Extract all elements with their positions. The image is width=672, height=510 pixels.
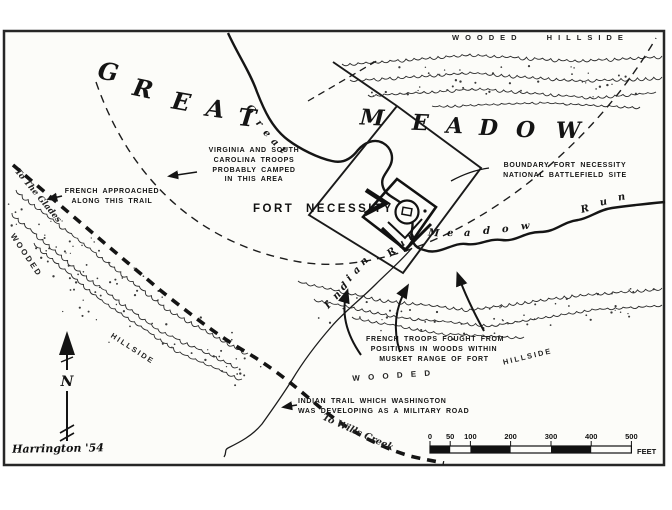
annotation-line: IN THIS AREA [193, 175, 315, 185]
speckle-dot [47, 261, 49, 263]
speckle-dot [417, 90, 418, 91]
speckle-dot [398, 66, 400, 68]
scale-unit: FEET [637, 447, 657, 456]
speckle-dot [436, 311, 438, 313]
speckle-dot [407, 93, 409, 95]
speckle-dot [500, 66, 502, 68]
speckle-dot [434, 321, 436, 323]
speckle-dot [129, 326, 131, 328]
speckle-dot [488, 91, 490, 93]
scale-tick: 200 [504, 432, 517, 441]
speckle-dot [485, 93, 487, 95]
speckle-dot [526, 323, 528, 325]
meadow-name-letter: O [516, 119, 536, 141]
speckle-dot [516, 321, 517, 322]
scale-tick: 500 [625, 432, 638, 441]
speckle-dot [509, 82, 511, 84]
speckle-dot [143, 275, 145, 277]
speckle-dot [585, 82, 586, 83]
speckle-dot [96, 319, 97, 320]
speckle-dot [75, 281, 77, 283]
speckle-dot [207, 349, 208, 350]
speckle-dot [635, 93, 637, 95]
speckle-dot [77, 274, 79, 276]
speckle-dot [494, 332, 496, 334]
speckle-dot [500, 306, 502, 308]
speckle-dot [385, 91, 387, 93]
meadow-name-letter: E [412, 112, 430, 135]
speckle-dot [151, 323, 153, 325]
speckle-dot [595, 88, 597, 90]
speckle-dot [425, 67, 426, 68]
speckle-dot [83, 300, 84, 301]
speckle-dot [91, 237, 92, 238]
speckle-dot [528, 65, 530, 67]
speckle-dot [88, 311, 90, 313]
speckle-dot [55, 246, 57, 248]
speckle-dot [599, 86, 601, 88]
speckle-dot [610, 311, 612, 313]
speckle-dot [446, 89, 448, 91]
speckle-dot [231, 332, 233, 334]
speckle-dot [236, 358, 237, 359]
speckle-dot [62, 311, 63, 312]
speckle-dot [35, 247, 37, 249]
speckle-dot [439, 74, 440, 75]
speckle-dot [136, 290, 138, 292]
speckle-dot [97, 278, 99, 280]
speckle-dot [573, 67, 575, 69]
speckle-dot [100, 295, 102, 297]
speckle-dot [493, 318, 495, 320]
speckle-dot [70, 253, 71, 254]
speckle-dot [81, 315, 83, 317]
speckle-dot [8, 203, 10, 205]
boundary-annotation: BOUNDARY FORT NECESSITY NATIONAL BATTLEF… [489, 161, 641, 181]
speckle-dot [597, 293, 599, 295]
meadow-name-letter: D [479, 117, 498, 139]
speckle-dot [585, 314, 587, 316]
speckle-dot [420, 329, 422, 331]
speckle-dot [162, 343, 164, 345]
speckle-dot [424, 321, 426, 323]
speckle-dot [64, 250, 66, 252]
speckle-dot [566, 298, 568, 300]
speckle-dot [83, 271, 85, 273]
speckle-dot [627, 313, 628, 314]
speckle-dot [116, 283, 118, 285]
annotation-line: BOUNDARY FORT NECESSITY [489, 161, 641, 171]
speckle-dot [507, 323, 509, 325]
speckle-dot [70, 289, 72, 291]
speckle-dot [48, 247, 50, 249]
speckle-dot [213, 356, 215, 358]
speckle-dot [44, 235, 45, 236]
speckle-dot [239, 368, 241, 370]
speckle-dot [502, 319, 503, 320]
speckle-dot [455, 79, 457, 81]
north-letter: N [60, 374, 75, 390]
speckle-dot [123, 310, 125, 312]
speckle-dot [165, 323, 167, 325]
wooded-hillside-top-label: WOODED HILLSIDE [452, 33, 629, 42]
speckle-dot [236, 373, 238, 375]
meadow-name-letter: M [359, 106, 384, 129]
speckle-dot [590, 319, 592, 321]
speckle-dot [204, 359, 206, 361]
speckle-dot [371, 92, 373, 94]
speckle-dot [114, 279, 116, 281]
scale-tick: 300 [545, 432, 558, 441]
speckle-dot [386, 316, 388, 318]
speckle-dot [234, 384, 236, 386]
speckle-dot [69, 240, 71, 242]
speckle-dot [537, 80, 539, 82]
speckle-dot [618, 75, 620, 77]
speckle-dot [499, 307, 500, 308]
speckle-dot [628, 316, 630, 318]
annotation-line: FRENCH APPROACHED [60, 187, 164, 197]
speckle-dot [653, 288, 655, 290]
speckle-dot [462, 87, 464, 89]
speckle-dot [606, 84, 608, 86]
speckle-dot [260, 366, 261, 367]
speckle-dot [380, 330, 381, 331]
speckle-dot [108, 342, 109, 343]
speckle-dot [582, 81, 583, 82]
speckle-dot [550, 324, 552, 326]
speckle-dot [226, 366, 227, 367]
speckle-dot [568, 305, 570, 307]
meadow-name-letter: A [446, 115, 464, 138]
speckle-dot [459, 69, 461, 71]
speckle-dot [555, 303, 557, 305]
speckle-dot [161, 296, 163, 298]
speckle-dot [109, 281, 111, 283]
speckle-dot [474, 82, 476, 84]
annotation-line: POSITIONS IN WOODS WITHIN [366, 345, 502, 355]
speckle-dot [44, 237, 46, 239]
speckle-dot [220, 350, 222, 352]
speckle-dot [134, 294, 136, 296]
speckle-dot [38, 224, 40, 226]
annotation-line: INDIAN TRAIL WHICH WASHINGTON [298, 397, 469, 407]
annotation-line: VIRGINIA AND SOUTH [193, 146, 315, 156]
camp-annotation: VIRGINIA AND SOUTH CAROLINA TROOPS PROBA… [193, 146, 315, 185]
speckle-dot [409, 309, 411, 311]
speckle-dot [356, 297, 358, 299]
speckle-dot [81, 245, 83, 247]
speckle-dot [534, 303, 536, 305]
speckle-dot [359, 316, 361, 318]
speckle-dot [231, 339, 233, 341]
speckle-dot [11, 224, 13, 226]
meadow-name-letter: W [556, 120, 581, 142]
speckle-dot [69, 277, 71, 279]
speckle-dot [243, 374, 245, 376]
speckle-dot [428, 72, 430, 74]
speckle-dot [389, 310, 391, 312]
speckle-dot [65, 252, 66, 253]
speckle-dot [15, 211, 17, 213]
great-meadow-run-letter: w [521, 222, 531, 233]
speckle-dot [244, 357, 246, 359]
speckle-dot [116, 304, 117, 305]
speckle-dot [200, 316, 202, 318]
speckle-dot [98, 250, 100, 252]
speckle-dot [630, 288, 632, 290]
scale-tick: 0 [428, 432, 432, 441]
annotation-line: MUSKET RANGE OF FORT [366, 355, 502, 365]
cartographer-signature: Harrington '54 [12, 441, 104, 456]
speckle-dot [632, 291, 634, 293]
speckle-dot [191, 352, 193, 354]
speckle-dot [461, 323, 463, 325]
speckle-dot [570, 66, 571, 67]
speckle-dot [520, 90, 522, 92]
speckle-dot [86, 264, 88, 266]
fort-necessity-map: N 0 50 100 200 300 400 500 FEET WOODED H… [0, 0, 672, 510]
great-meadow-run-letter: e [447, 229, 454, 239]
speckle-dot [459, 80, 461, 82]
speckle-dot [16, 224, 17, 225]
speckle-dot [615, 305, 617, 307]
speckle-dot [93, 241, 94, 242]
speckle-dot [492, 72, 494, 74]
speckle-dot [174, 343, 176, 345]
speckle-dot [121, 277, 123, 279]
speckle-dot [611, 293, 613, 295]
speckle-dot [134, 267, 135, 268]
speckle-dot [218, 356, 220, 358]
annotation-line: CAROLINA TROOPS [193, 156, 315, 166]
french-approach-annotation: FRENCH APPROACHED ALONG THIS TRAIL [60, 187, 164, 207]
speckle-dot [94, 291, 96, 293]
speckle-dot [629, 289, 630, 290]
speckle-dot [99, 287, 100, 288]
speckle-dot [221, 370, 223, 372]
speckle-dot [401, 311, 403, 313]
speckle-dot [109, 262, 111, 264]
speckle-dot [45, 250, 47, 252]
french-positions-annotation: FRENCH TROOPS FOUGHT FROM POSITIONS IN W… [366, 335, 502, 364]
speckle-dot [571, 73, 573, 75]
speckle-dot [625, 76, 627, 78]
scale-tick: 400 [585, 432, 598, 441]
great-meadow-run-letter: d [483, 227, 490, 237]
great-meadow-run-letter: a [464, 229, 471, 239]
scale-tick: 100 [464, 432, 477, 441]
scale-tick: 50 [446, 432, 454, 441]
speckle-dot [72, 246, 73, 247]
speckle-dot [171, 347, 172, 348]
speckle-dot [523, 314, 525, 316]
annotation-line: ALONG THIS TRAIL [60, 197, 164, 207]
speckle-dot [239, 372, 241, 374]
speckle-dot [588, 73, 589, 74]
speckle-dot [79, 307, 81, 309]
speckle-dot [21, 208, 23, 210]
speckle-dot [61, 220, 62, 221]
speckle-dot [381, 319, 382, 320]
meadow-name-letter: G [96, 58, 120, 85]
speckle-dot [419, 86, 421, 88]
speckle-dot [329, 322, 331, 324]
speckle-dot [73, 289, 75, 291]
speckle-dot [40, 257, 42, 259]
speckle-dot [534, 318, 536, 320]
speckle-dot [620, 311, 621, 312]
speckle-dot [373, 95, 375, 97]
speckle-dot [366, 301, 368, 303]
annotation-line: PROBABLY CAMPED [193, 166, 315, 176]
speckle-dot [452, 85, 454, 87]
speckle-dot [611, 84, 612, 85]
speckle-dot [52, 275, 54, 277]
meadow-name-letter: A [204, 96, 226, 122]
speckle-dot [116, 299, 117, 300]
speckle-dot [489, 308, 491, 310]
speckle-dot [318, 317, 320, 319]
speckle-dot [68, 265, 70, 267]
speckle-dot [615, 310, 616, 311]
speckle-dot [592, 96, 593, 97]
speckle-dot [157, 299, 159, 301]
fort-necessity-label: FORT NECESSITY [253, 203, 394, 215]
annotation-line: FRENCH TROOPS FOUGHT FROM [366, 335, 502, 345]
great-meadow-run-letter: M [428, 228, 440, 239]
great-meadow-run-letter: o [502, 225, 509, 235]
speckle-dot [444, 69, 445, 70]
annotation-line: NATIONAL BATTLEFIELD SITE [489, 171, 641, 181]
